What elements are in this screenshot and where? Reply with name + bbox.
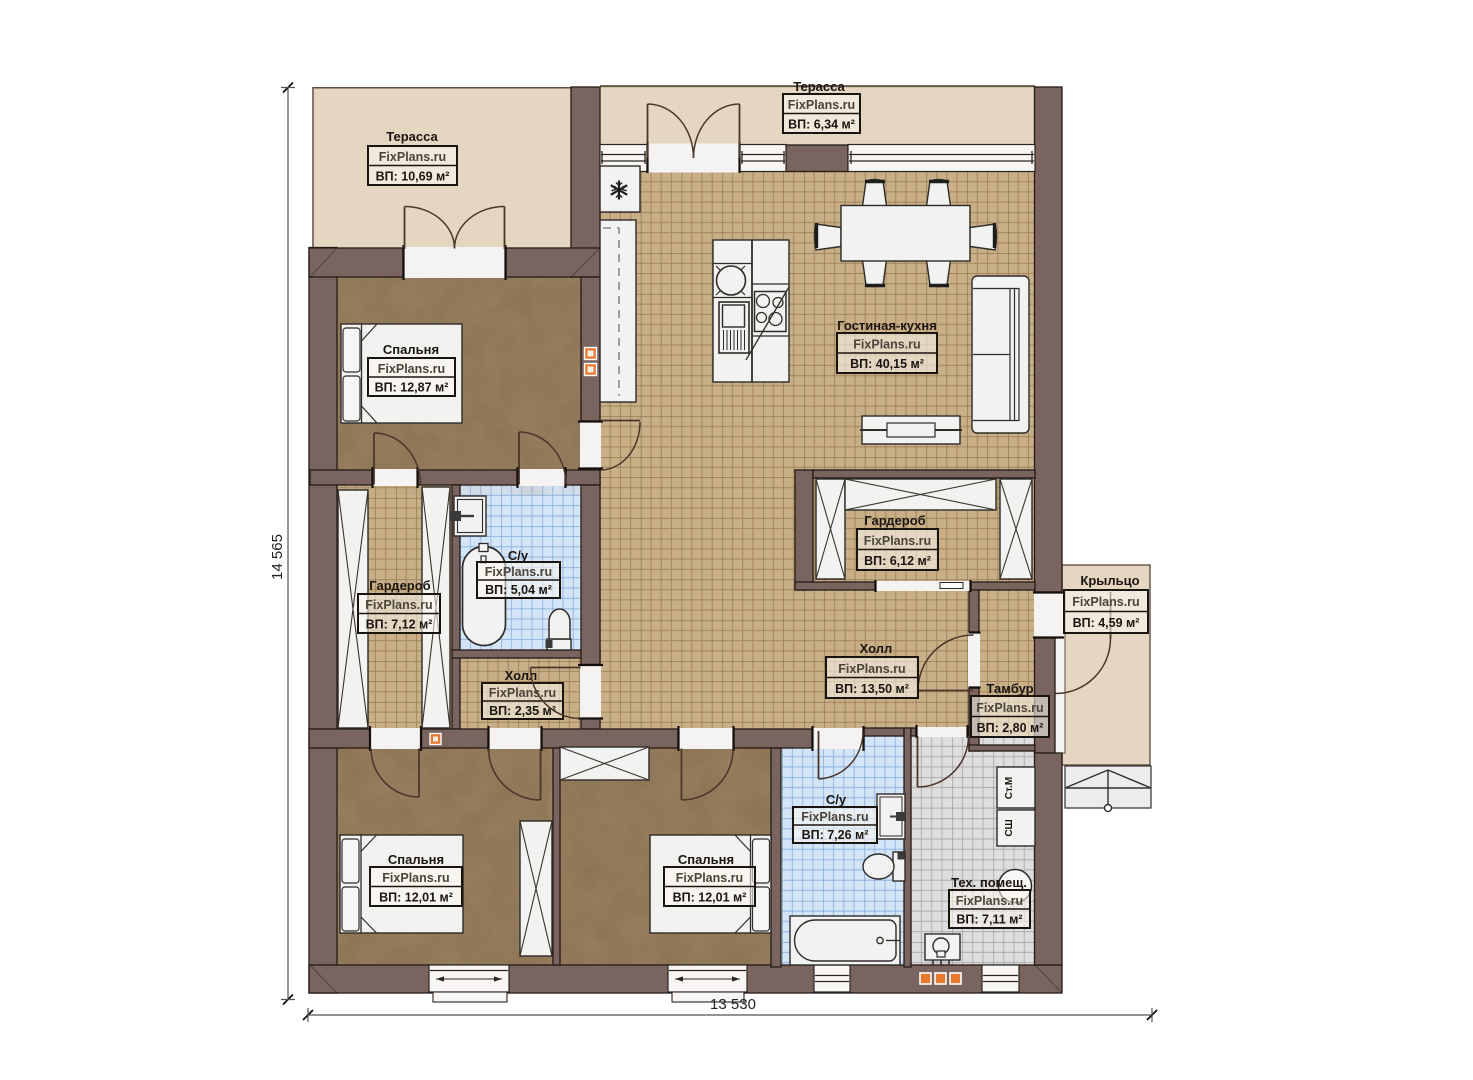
- svg-text:ВП: 13,50 м²: ВП: 13,50 м²: [835, 682, 909, 696]
- svg-text:ВП: 2,80 м²: ВП: 2,80 м²: [977, 721, 1044, 735]
- svg-text:14 565: 14 565: [269, 534, 286, 580]
- svg-text:ВП: 40,15 м²: ВП: 40,15 м²: [850, 357, 924, 371]
- svg-text:FixPlans.ru: FixPlans.ru: [853, 338, 920, 352]
- svg-text:СШ: СШ: [1004, 819, 1015, 836]
- svg-text:FixPlans.ru: FixPlans.ru: [1072, 595, 1139, 609]
- svg-text:Тех. помещ.: Тех. помещ.: [951, 875, 1027, 890]
- svg-text:С/у: С/у: [826, 792, 847, 807]
- svg-text:Терасса: Терасса: [386, 129, 438, 144]
- svg-text:FixPlans.ru: FixPlans.ru: [956, 894, 1023, 908]
- svg-text:FixPlans.ru: FixPlans.ru: [489, 686, 556, 700]
- svg-text:Крыльцо: Крыльцо: [1080, 573, 1139, 588]
- svg-text:ВП: 6,34 м²: ВП: 6,34 м²: [788, 118, 855, 132]
- svg-text:ВП: 7,12 м²: ВП: 7,12 м²: [366, 618, 433, 632]
- svg-text:FixPlans.ru: FixPlans.ru: [379, 150, 446, 164]
- svg-text:ВП: 4,59 м²: ВП: 4,59 м²: [1073, 616, 1140, 630]
- svg-text:FixPlans.ru: FixPlans.ru: [976, 701, 1043, 715]
- svg-text:FixPlans.ru: FixPlans.ru: [382, 871, 449, 885]
- svg-text:FixPlans.ru: FixPlans.ru: [864, 534, 931, 548]
- svg-text:С/у: С/у: [508, 548, 529, 563]
- svg-text:13 530: 13 530: [710, 996, 756, 1013]
- svg-text:FixPlans.ru: FixPlans.ru: [378, 362, 445, 376]
- svg-text:FixPlans.ru: FixPlans.ru: [801, 810, 868, 824]
- svg-text:Спальня: Спальня: [383, 342, 439, 357]
- svg-text:ВП: 12,01 м²: ВП: 12,01 м²: [379, 891, 453, 905]
- svg-text:ВП: 12,87 м²: ВП: 12,87 м²: [375, 381, 449, 395]
- svg-text:Гардероб: Гардероб: [369, 578, 430, 593]
- svg-text:FixPlans.ru: FixPlans.ru: [788, 98, 855, 112]
- svg-text:Гардероб: Гардероб: [864, 513, 925, 528]
- svg-text:Тамбур: Тамбур: [986, 681, 1033, 696]
- svg-text:ВП: 2,35 м²: ВП: 2,35 м²: [489, 704, 556, 718]
- svg-text:FixPlans.ru: FixPlans.ru: [485, 565, 552, 579]
- svg-text:Ст.М: Ст.М: [1004, 777, 1015, 799]
- svg-text:ВП: 7,11 м²: ВП: 7,11 м²: [956, 913, 1022, 927]
- svg-text:FixPlans.ru: FixPlans.ru: [365, 598, 432, 612]
- svg-text:FixPlans.ru: FixPlans.ru: [676, 871, 743, 885]
- svg-text:Спальня: Спальня: [388, 852, 444, 867]
- svg-text:ВП: 10,69 м²: ВП: 10,69 м²: [376, 170, 450, 184]
- svg-text:ВП: 5,04 м²: ВП: 5,04 м²: [485, 583, 552, 597]
- svg-text:Терасса: Терасса: [793, 79, 845, 94]
- svg-text:ВП: 7,26 м²: ВП: 7,26 м²: [802, 828, 869, 842]
- svg-text:ВП: 12,01 м²: ВП: 12,01 м²: [673, 891, 747, 905]
- svg-text:Гостиная-кухня: Гостиная-кухня: [837, 318, 937, 333]
- svg-text:Спальня: Спальня: [678, 852, 734, 867]
- svg-text:Холл: Холл: [860, 641, 893, 656]
- svg-text:FixPlans.ru: FixPlans.ru: [838, 662, 905, 676]
- svg-text:ВП: 6,12 м²: ВП: 6,12 м²: [864, 554, 931, 568]
